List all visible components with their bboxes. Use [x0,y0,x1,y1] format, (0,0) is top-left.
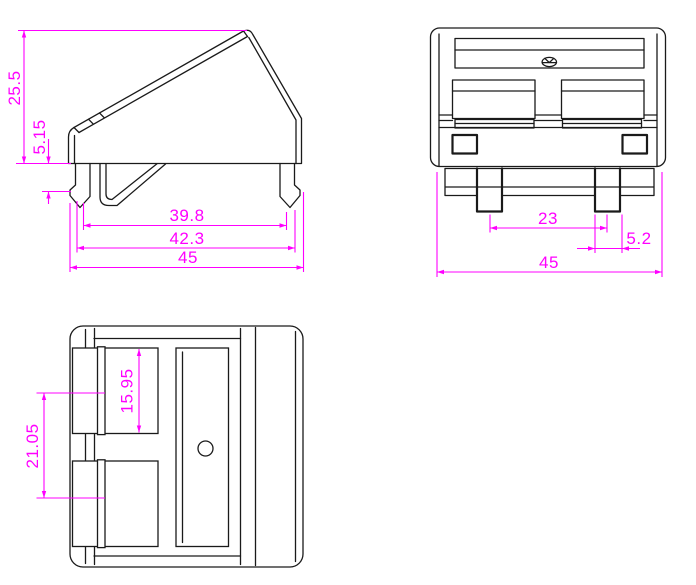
arrow-front-width-left [437,270,444,274]
arrow-inner-width-left [84,223,91,227]
arrow-mid-width-left [77,246,84,250]
dim-text-window-height: 15.95 [118,368,137,413]
front-top-slot [455,39,644,69]
arrow-clip-height-top [46,157,50,164]
arrow-total-height-top [22,31,26,38]
bottom-center-slot [176,348,229,547]
engineering-drawing: 25.5 5.15 39.8 42.3 45 [0,0,696,585]
front-view: 23 5.2 45 [431,28,666,277]
front-right-square-hole [623,135,648,154]
dim-text-leg-offset: 5.2 [626,229,651,248]
arrow-front-width-right [655,270,662,274]
arrow-window-spacing-bottom [42,491,46,498]
arrow-total-height-bottom [22,157,26,164]
bottom-lower-latch-strip [98,460,106,548]
side-slope-tick-2 [100,113,105,118]
side-inner-right-slope [249,38,296,164]
dim-text-total-width: 45 [178,248,198,267]
side-inner-left-slope [79,37,248,133]
front-left-square-hole [453,135,478,154]
front-view-dimensions: 23 5.2 45 [437,172,662,277]
dim-text-window-spacing: 21.05 [23,423,42,468]
front-left-window [453,80,536,119]
side-hook-inner [106,164,157,200]
arrow-clip-height-bottom [46,192,50,199]
side-left-foot [70,164,90,208]
dim-text-inner-width: 39.8 [169,206,204,225]
dim-text-leg-spacing: 23 [538,209,558,228]
front-left-leg [477,169,502,212]
front-outer-body [431,28,666,167]
arrow-inner-width-right [280,223,287,227]
dim-text-total-height: 25.5 [5,70,24,105]
drawing-canvas: 25.5 5.15 39.8 42.3 45 [0,0,696,585]
dim-text-mid-width: 42.3 [169,229,204,248]
bottom-upper-latch-strip [98,347,106,435]
arrow-window-spacing-top [42,393,46,400]
bottom-upper-opening [73,348,159,434]
dim-text-clip-height: 5.15 [30,119,49,154]
side-apex-facet [244,31,248,37]
front-right-window [562,80,645,119]
bottom-view-part [70,326,303,567]
front-view-part [431,28,666,212]
side-view-dimensions: 25.5 5.15 39.8 42.3 45 [5,31,304,273]
arrow-leg-offset-left [588,246,595,250]
side-outer-profile [69,30,302,163]
side-corner-facet [74,128,79,133]
arrow-total-width-left [70,265,77,269]
side-right-foot [280,164,300,208]
bottom-lower-opening [73,461,159,547]
side-view-part [69,30,302,207]
arrow-leg-spacing-left [490,226,497,230]
side-slope-tick-1 [89,119,94,124]
side-view: 25.5 5.15 39.8 42.3 45 [5,30,304,272]
dim-text-front-width: 45 [539,253,559,272]
front-right-leg [595,169,620,212]
arrow-total-width-right [297,265,304,269]
arrow-leg-spacing-right [600,226,607,230]
arrow-mid-width-right [288,246,295,250]
bottom-view: 15.95 21.05 [23,326,303,567]
